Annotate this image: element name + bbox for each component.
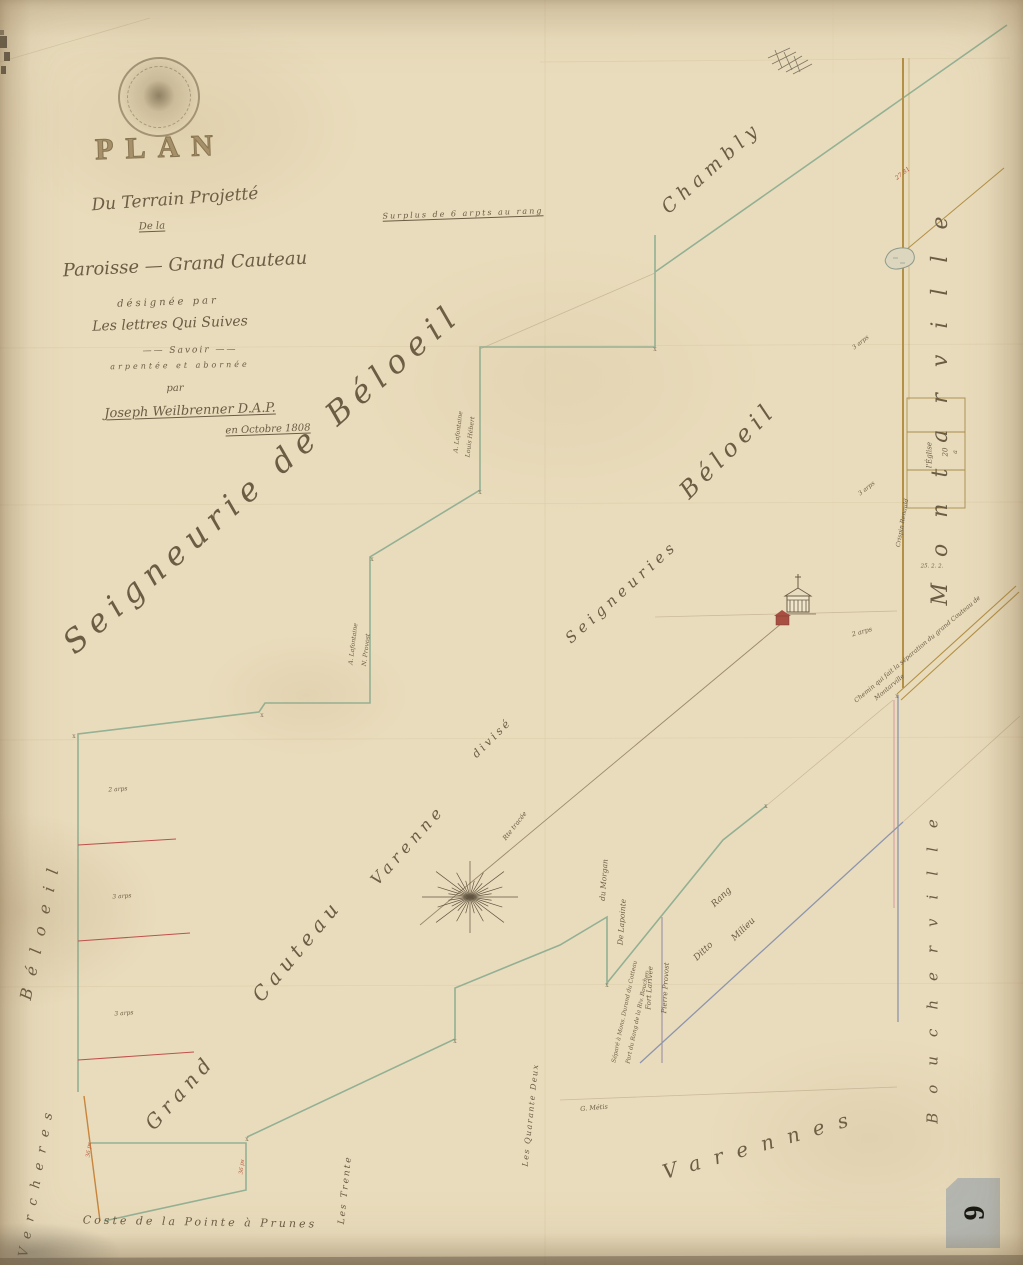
measure-3-arps-left1: 3 arps bbox=[112, 893, 131, 900]
corner-mark: x bbox=[260, 713, 263, 719]
measure-2-arps-church: 2 arps bbox=[851, 626, 873, 638]
label-seigneuries: Seigneuries bbox=[563, 538, 681, 646]
seigneurie-chambly: Chambly bbox=[658, 118, 765, 217]
seigneurie-de-beloeil: Seigneurie de Béloeil bbox=[57, 297, 467, 659]
title-plan: PLAN bbox=[95, 131, 226, 166]
corner-mark: x bbox=[764, 804, 767, 810]
owner-n-provost: N. Provost bbox=[362, 633, 372, 666]
owner-de-lapointe: De Lapointe bbox=[617, 899, 628, 946]
surplus-note: Surplus de 6 arpts au rang bbox=[382, 207, 543, 221]
owner-g-metis: G. Métis bbox=[580, 1104, 608, 1113]
seigneurie-vercheres: Vercheres bbox=[17, 1102, 57, 1258]
label-beloeil-diag: Béloeil bbox=[675, 397, 781, 503]
title-line-arpentee: arpentée et abornée bbox=[110, 361, 250, 371]
corner-mark: x bbox=[653, 347, 656, 353]
milieu-label: Milieu bbox=[730, 917, 757, 944]
label-varenne: Varenne bbox=[368, 802, 448, 888]
ditto-label: Ditto bbox=[693, 941, 716, 963]
title-line-par: par bbox=[166, 384, 183, 394]
lot-les-quarante-deux: Les Quarante Deux bbox=[522, 1063, 541, 1167]
title-line-designee: désignée par bbox=[117, 296, 219, 310]
seigneurie-montarville: Montarville bbox=[930, 191, 952, 606]
title-signature: Joseph Weilbrenner D.A.P. bbox=[104, 402, 276, 421]
corner-mark: x bbox=[72, 734, 75, 740]
measure-3-arps-1: 3 arps bbox=[852, 335, 871, 351]
map-sheet: PLANDu Terrain ProjettéDe laParoisse — G… bbox=[0, 0, 1023, 1265]
corner-mark: x bbox=[453, 1039, 456, 1045]
label-grand: Grand bbox=[141, 1051, 218, 1134]
measure-36-ps-2: 36 ps bbox=[239, 1159, 246, 1175]
title-line-lettres: Les lettres Qui Suives bbox=[92, 314, 248, 333]
owner-pierre-provost: Pierre Provost bbox=[661, 962, 671, 1013]
measure-25-2-2: 25. 2. 2. bbox=[921, 564, 944, 570]
table-row-eglise: l'Église bbox=[927, 442, 934, 468]
measure-3-arps-left2: 3 arps bbox=[114, 1010, 133, 1017]
owner-louis-hebert: Louis Hébert bbox=[465, 416, 476, 458]
measure-3-arps-2: 3 arps bbox=[858, 481, 877, 497]
label-cauteau: Cauteau bbox=[249, 895, 346, 1005]
corner-mark: x bbox=[478, 490, 481, 496]
corner-mark: x bbox=[245, 1137, 248, 1143]
chemin-note-1: Chemin qui fait la séparation du grand C… bbox=[854, 595, 983, 704]
measure-27-81: 27.81 bbox=[894, 166, 911, 181]
caption-coste: Coste de la Pointe à Prunes bbox=[83, 1214, 318, 1229]
seigneurie-varennes: Varennes bbox=[660, 1106, 863, 1182]
label-divise: divisé bbox=[470, 716, 513, 759]
title-line-savoir: —— Savoir —— bbox=[142, 346, 237, 357]
corner-mark: x bbox=[605, 983, 608, 989]
seigneurie-boucherville: Boucherville bbox=[926, 800, 941, 1124]
owner-du-morgan: du Morgan bbox=[599, 859, 609, 901]
measure-2-arps-left: 2 arps bbox=[108, 786, 127, 793]
title-line-dela: De la bbox=[139, 222, 166, 233]
owner-lafontaine-1: A. Lafontaine bbox=[453, 411, 464, 453]
owner-crispin-renauld: Crispin Renauld bbox=[896, 498, 910, 547]
sticker-number: 6 bbox=[956, 1206, 990, 1221]
owner-lafontaine-2: A. Lafontaine bbox=[348, 623, 359, 665]
measure-36-ps-1: 36 ps bbox=[86, 1142, 93, 1158]
archival-number-sticker: 6 bbox=[946, 1178, 1000, 1248]
map-labels-layer: PLANDu Terrain ProjettéDe laParoisse — G… bbox=[0, 0, 1023, 1265]
seigneurie-beloeil-left: Béloeil bbox=[18, 855, 64, 1002]
corner-mark: x bbox=[370, 557, 373, 563]
title-line-terrain: Du Terrain Projetté bbox=[91, 186, 259, 215]
route-note: Rte tracée bbox=[502, 810, 528, 841]
lot-les-trente: Les Trente bbox=[338, 1155, 354, 1225]
title-line-paroisse: Paroisse — Grand Cauteau bbox=[62, 250, 307, 281]
table-row-20: 20 bbox=[943, 448, 950, 457]
corner-mark: x bbox=[895, 694, 898, 700]
rang-label: Rang bbox=[710, 886, 733, 909]
table-row-a: a bbox=[953, 450, 959, 454]
